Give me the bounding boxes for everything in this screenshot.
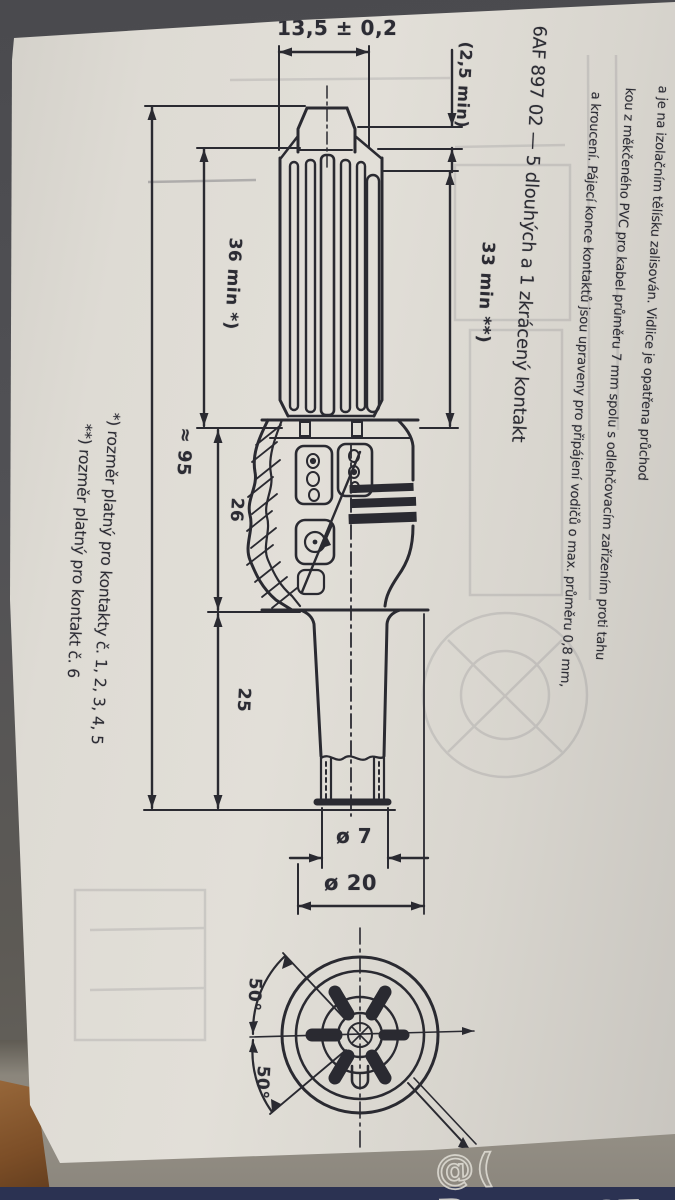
dim-36-min-label: 36 min *): [220, 237, 243, 330]
dim-dia-20-label: ø 20: [324, 872, 377, 894]
dim-33-min-label: 33 min **): [473, 241, 496, 343]
pencil-line: [148, 180, 256, 182]
angle-50-lower-label: 50°: [251, 1065, 271, 1100]
bazos-watermark: @( Bazos.cz: [435, 1140, 675, 1200]
dim-dia-7-label: ø 7: [336, 826, 372, 847]
dim-25-label: 25: [233, 687, 252, 713]
side-view: [247, 86, 428, 816]
document-page: 6AF 897 02 — 5 dlouhých a 1 zkrácený kon…: [0, 0, 675, 1200]
dimension-arrows: [148, 48, 457, 911]
dim-2-5-min-label: (2,5 min): [453, 41, 474, 128]
angle-50-upper-label: 50°: [243, 977, 263, 1012]
dim-26-label: 26: [226, 497, 245, 523]
dim-95-label: ≈ 95: [173, 427, 194, 476]
dim-13-5-label: 13,5 ± 0,2: [277, 18, 397, 39]
photo-scene: 6AF 897 02 — 5 dlouhých a 1 zkrácený kon…: [0, 0, 675, 1200]
